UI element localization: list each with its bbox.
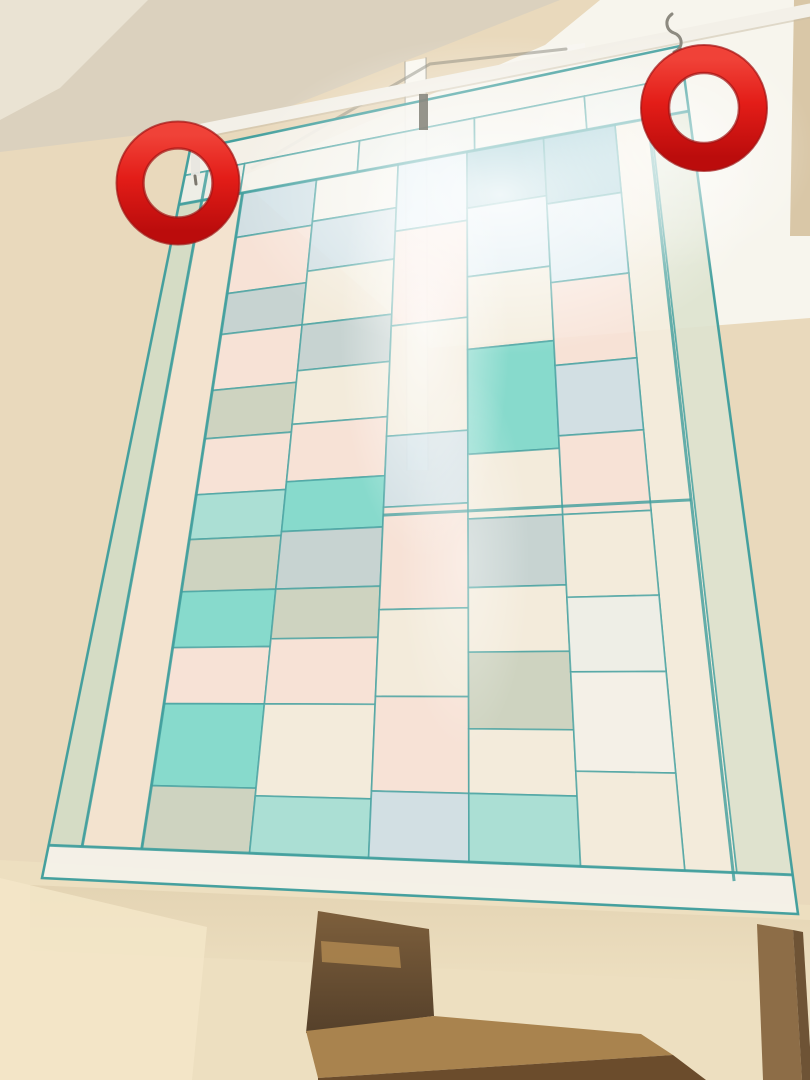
curtain-patch-aq (151, 704, 264, 789)
left-clip-hook (195, 176, 196, 184)
curtain-patch-pe (164, 647, 270, 704)
stairwell-niche (306, 911, 434, 1033)
curtain-patch-wh2 (567, 595, 666, 672)
curtain-patch-aq (173, 589, 276, 648)
curtain-patch-cr (576, 771, 685, 870)
scene-svg (0, 0, 810, 1080)
curtain-patch-gg (205, 382, 297, 439)
curtain-patch-cr (255, 704, 375, 799)
curtain-patch-bg (276, 527, 383, 589)
curtain-patch-pe (264, 637, 378, 704)
curtain-patch-gg (181, 536, 281, 592)
center-curtain-clip (419, 94, 428, 130)
curtain-patch-bl (369, 791, 469, 862)
curtain-patch-aq2 (469, 793, 581, 866)
curtain-patch-gg (271, 586, 380, 639)
curtain-patch-pe (212, 325, 302, 391)
curtain-patch-gg (142, 786, 256, 854)
curtain-patch-aq2 (189, 490, 285, 540)
curtain-patch-wh (571, 671, 676, 773)
curtain-patch-pe (196, 432, 291, 495)
window-glow-lower (400, 370, 530, 750)
curtain-patch-aq2 (250, 796, 372, 858)
photo-stairwell-patchwork-curtain (0, 0, 810, 1080)
curtain-patch-bl (555, 358, 643, 436)
curtain-patch-cr (563, 510, 659, 597)
